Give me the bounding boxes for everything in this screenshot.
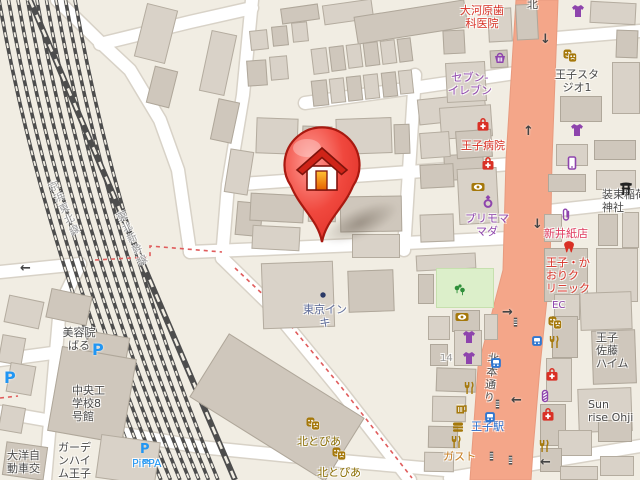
map-canvas[interactable]: 大河原歯 科医院セブン- イレブン王子スタ ジオ1王子病院プリモマ マダ新井紙店… [0, 0, 640, 480]
location-pin[interactable] [0, 0, 640, 480]
home-pin-marker[interactable] [285, 127, 360, 242]
